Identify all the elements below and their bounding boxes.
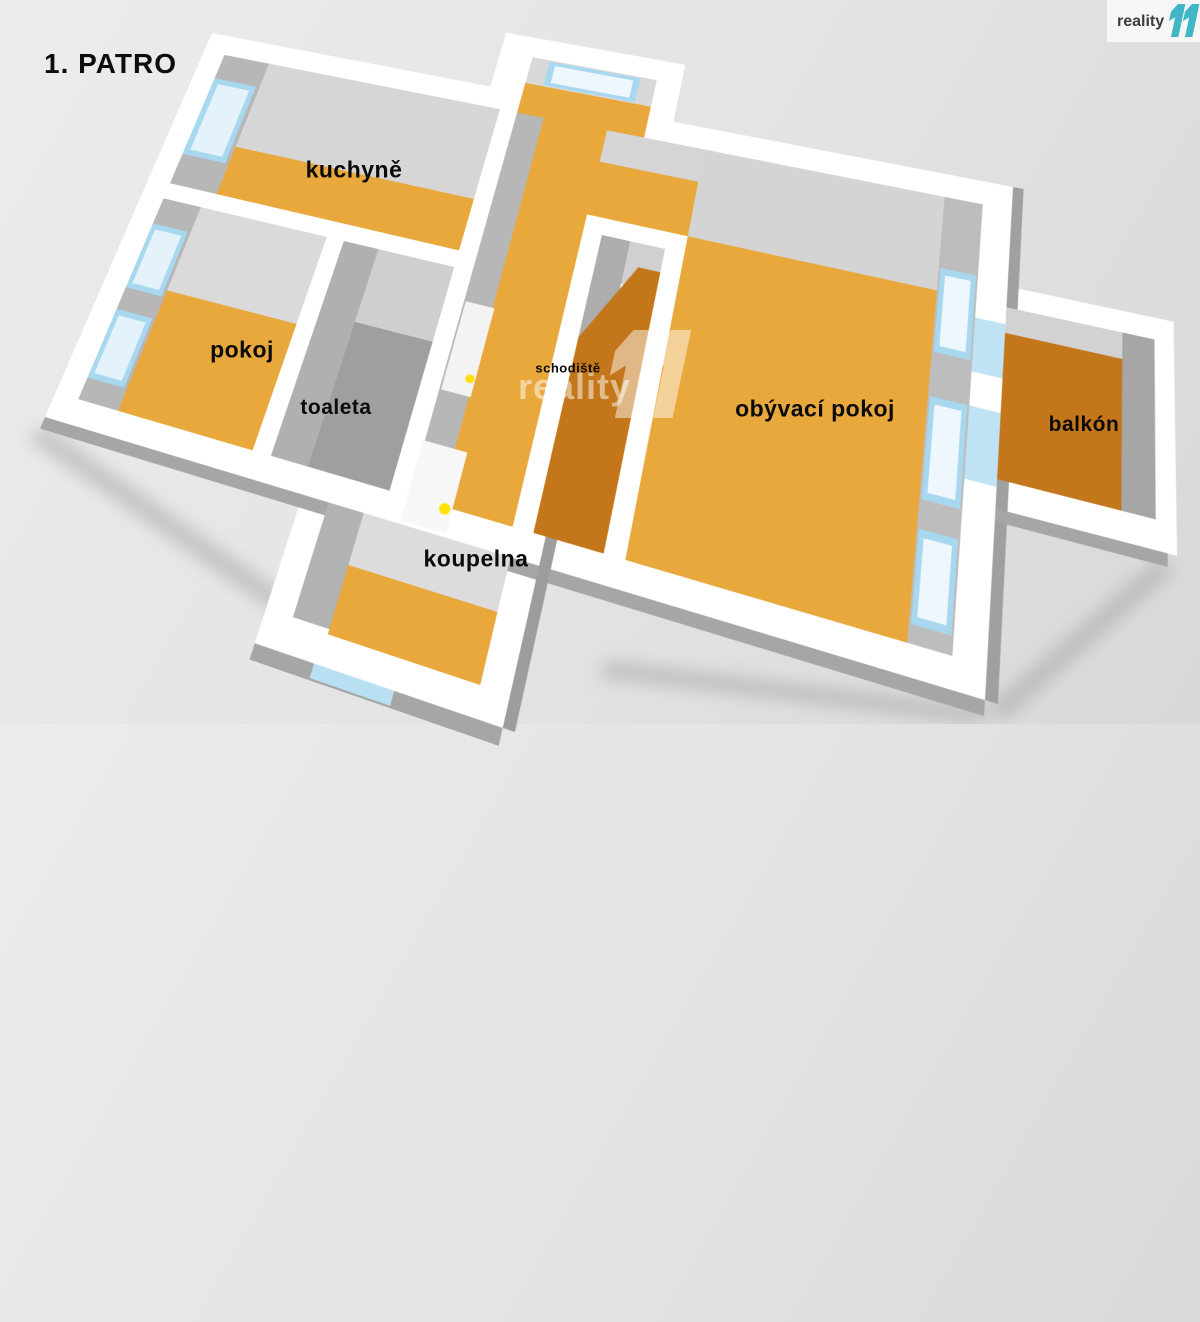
floorplan-3d [0, 0, 1200, 1314]
room-label-toaleta: toaleta [300, 396, 371, 420]
page-title: 1. PATRO [44, 48, 177, 80]
reality11-logo: reality [1107, 0, 1200, 42]
floorplan-svg [0, 0, 1200, 1314]
room-label-obyvaci-pokoj: obývací pokoj [735, 396, 895, 423]
room-label-balkon: balkón [1049, 413, 1120, 437]
room-label-pokoj: pokoj [210, 337, 274, 364]
room-label-schodiste: schodiště [535, 361, 600, 376]
floorplan-page: { "title": "1. PATRO", "logo": { "brand"… [0, 0, 1200, 724]
room-label-kuchyne: kuchyně [306, 157, 403, 184]
balcony-door [964, 405, 1000, 486]
logo-brand-text: reality [1117, 13, 1164, 31]
balcony-east-wall-face [1121, 333, 1155, 520]
logo-one-icon [1165, 4, 1185, 37]
balcony-window [972, 318, 1006, 379]
room-label-koupelna: koupelna [424, 546, 529, 573]
